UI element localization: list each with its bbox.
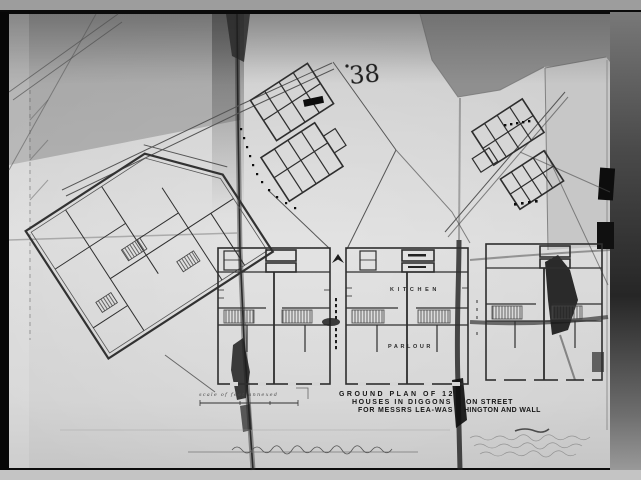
title-line-1: GROUND PLAN OF 12 xyxy=(339,391,454,398)
paper-patch-piece xyxy=(545,57,610,250)
scale-caption: scale of feet annexed xyxy=(199,392,277,398)
catalog-number: 38 xyxy=(348,59,381,90)
frame-bottom-strip xyxy=(0,470,641,480)
photograph-of-architectural-plan: 38 KITCHEN PARLOUR scale of feet annexed… xyxy=(0,0,641,480)
title-line-3-right: HINGTON AND WALL xyxy=(464,407,542,414)
title-line-3-left: FOR MESSRS LEA-WAS xyxy=(358,407,454,414)
title-line-2-left: HOUSES IN DIGGONS xyxy=(352,399,452,406)
title-line-2-right: ON STREET xyxy=(466,399,514,406)
frame-right-band xyxy=(610,12,641,470)
frame-left-bar xyxy=(0,12,9,470)
plan-photo-canvas: 38 KITCHEN PARLOUR scale of feet annexed… xyxy=(0,0,641,480)
parlour-room-label: PARLOUR xyxy=(388,344,432,350)
